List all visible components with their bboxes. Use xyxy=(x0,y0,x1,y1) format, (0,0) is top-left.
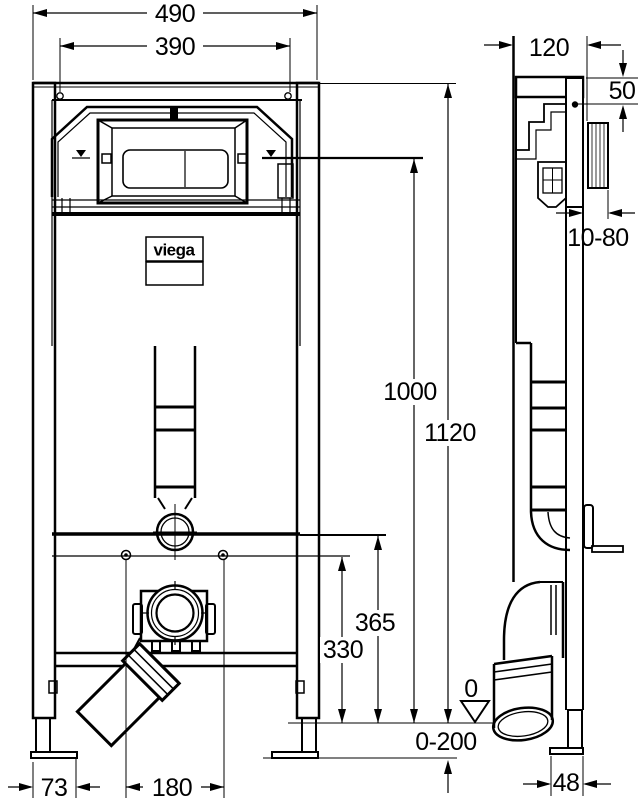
dim-label-floor-adjust-range: 0-200 xyxy=(415,728,476,756)
flush-buttons xyxy=(123,150,228,188)
front-view: viega xyxy=(31,83,319,758)
dim-foot-depth: 48 xyxy=(523,756,611,797)
level-triangle-icon xyxy=(461,701,489,722)
fill-valve-profile xyxy=(516,104,566,150)
dim-label-frame-height: 1120 xyxy=(424,419,476,447)
flush-bend-side xyxy=(531,512,570,550)
water-level-mark-right xyxy=(266,150,276,157)
left-foot-plate xyxy=(31,752,77,758)
dim-label-overall-width: 490 xyxy=(155,0,195,28)
dim-label-fixing-hole-spacing: 390 xyxy=(155,33,195,61)
dim-label-actuation-height: 1000 xyxy=(383,378,437,406)
installation-frame-drawing: viega xyxy=(0,0,640,800)
label-plate xyxy=(146,262,203,285)
dim-foot-plate-width: 73 xyxy=(8,758,100,800)
fixing-hole-left xyxy=(57,93,63,99)
wall-bracket xyxy=(584,505,593,548)
dim-label-plate-top-offset: 50 xyxy=(609,77,636,105)
dim-floor-adjust-range: 0-200 xyxy=(263,728,477,793)
side-leg xyxy=(568,710,582,748)
dim-label-foot-plate-width: 73 xyxy=(41,774,68,800)
side-foot-plate xyxy=(550,748,583,754)
dim-supply-height: 365 xyxy=(300,535,398,723)
top-tab xyxy=(170,106,178,119)
dim-label-finished-wall-range: 10-80 xyxy=(567,224,628,252)
flush-plate-assembly xyxy=(52,106,300,214)
brand-logo: viega xyxy=(154,241,196,260)
feet xyxy=(31,718,318,758)
dim-label-supply-height: 365 xyxy=(355,609,395,637)
outlet-drain-pipe xyxy=(75,644,180,749)
technical-drawing-page: viega xyxy=(0,0,640,800)
flush-pipe xyxy=(153,346,197,560)
dim-bracket-height: 330 xyxy=(300,556,366,723)
dim-label-drain-offset: 180 xyxy=(152,774,192,800)
fixing-hole-right xyxy=(285,93,291,99)
dim-label-floor-level: 0 xyxy=(464,675,477,703)
right-foot-plate xyxy=(272,752,318,758)
drain-elbow xyxy=(504,582,540,660)
bracket-rod xyxy=(592,546,623,552)
plate-frame xyxy=(98,120,247,203)
water-level-mark-left xyxy=(76,150,86,157)
protection-panel xyxy=(566,78,583,207)
plate-screw-left xyxy=(102,154,111,163)
drain-opening xyxy=(491,704,555,744)
dim-label-foot-depth: 48 xyxy=(553,769,580,797)
left-leg xyxy=(36,718,50,752)
dim-label-frame-depth: 120 xyxy=(529,34,569,62)
side-view xyxy=(491,36,623,754)
brand-logo-plate: viega xyxy=(146,237,203,285)
dim-label-bracket-height: 330 xyxy=(323,636,363,664)
finished-wall-hatch xyxy=(588,123,608,188)
